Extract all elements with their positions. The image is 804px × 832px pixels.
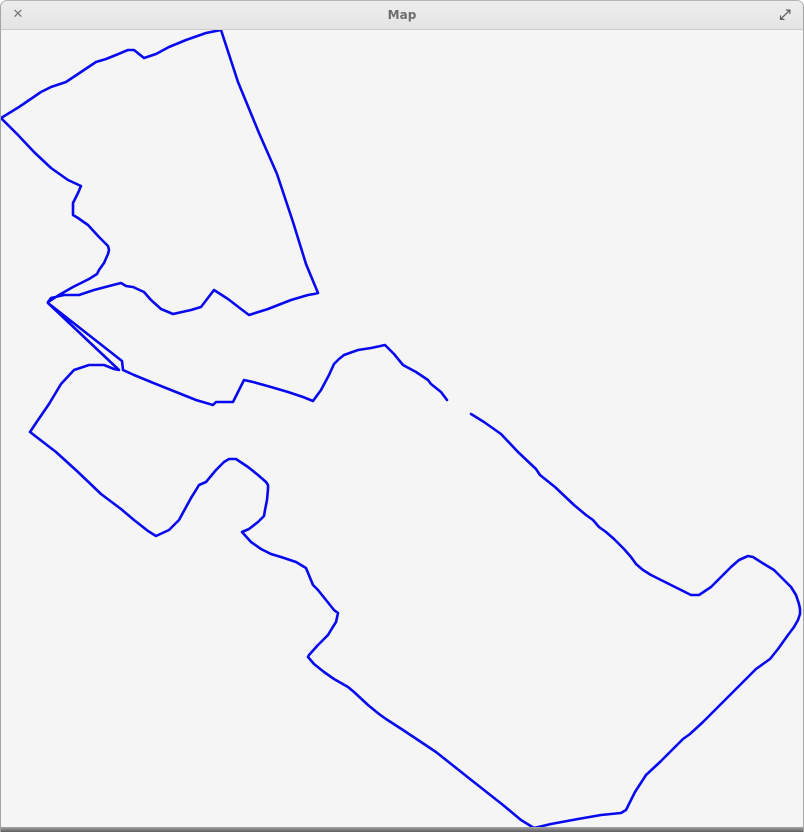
map-window: ✕ Map ⤢ bbox=[0, 0, 804, 832]
map-canvas[interactable] bbox=[1, 30, 804, 829]
expand-icon[interactable]: ⤢ bbox=[776, 6, 794, 24]
bottom-resize-bar[interactable] bbox=[1, 827, 803, 832]
map-canvas-svg bbox=[1, 30, 804, 829]
window-title: Map bbox=[388, 8, 417, 22]
titlebar[interactable]: ✕ Map ⤢ bbox=[1, 1, 803, 30]
close-icon[interactable]: ✕ bbox=[9, 6, 27, 24]
lower-loop-trace bbox=[30, 303, 800, 828]
upper-boundary-trace bbox=[1, 30, 318, 315]
